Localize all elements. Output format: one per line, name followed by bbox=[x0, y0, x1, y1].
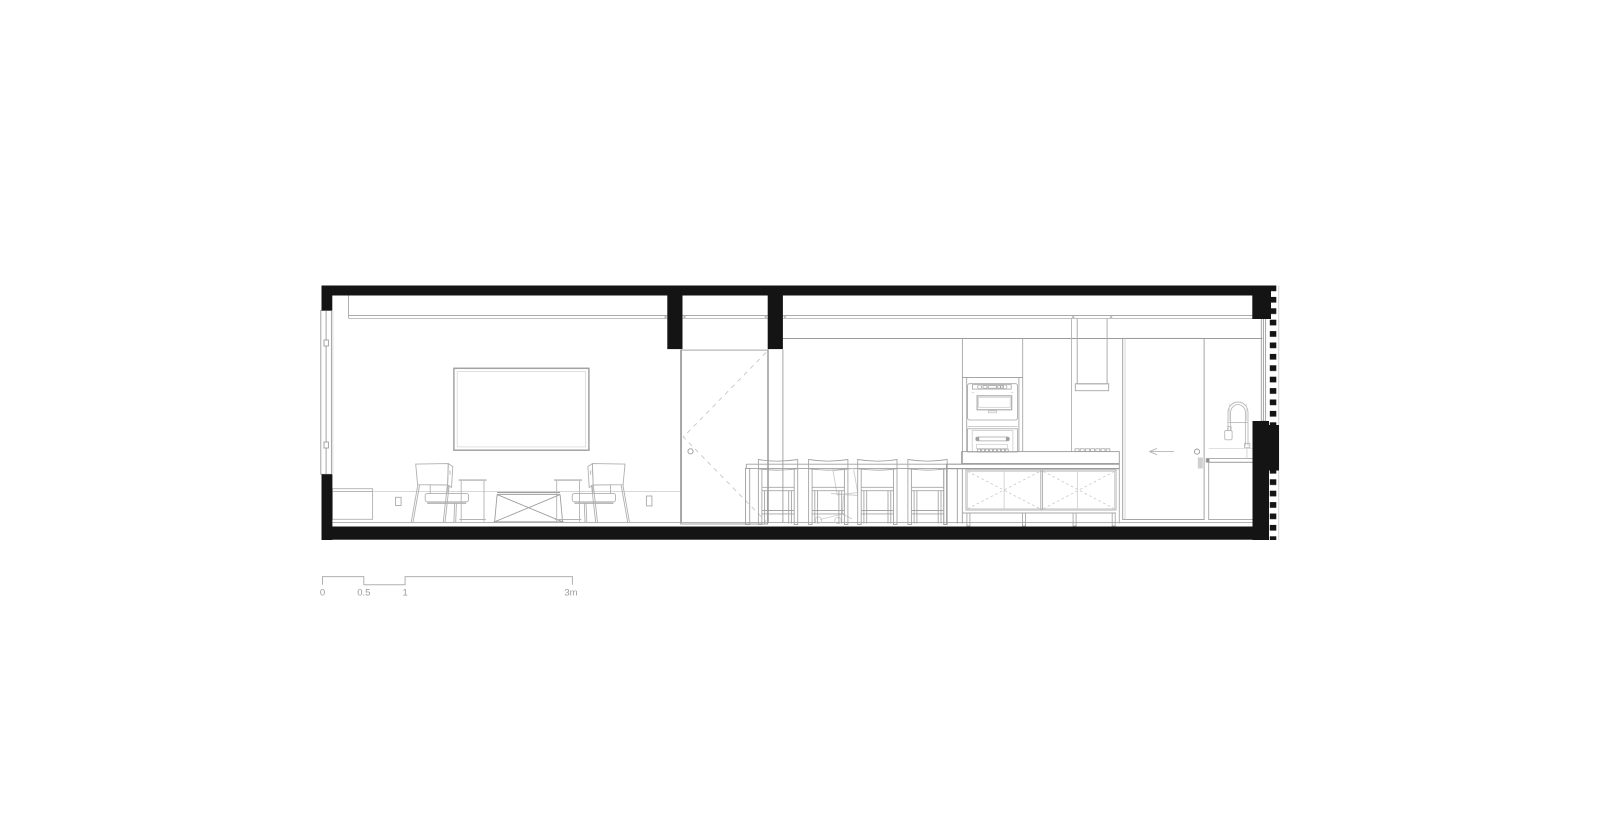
svg-text:1: 1 bbox=[402, 588, 407, 599]
svg-text:3m: 3m bbox=[564, 588, 577, 599]
svg-text:0.5: 0.5 bbox=[357, 588, 370, 599]
svg-text:0: 0 bbox=[320, 588, 325, 599]
